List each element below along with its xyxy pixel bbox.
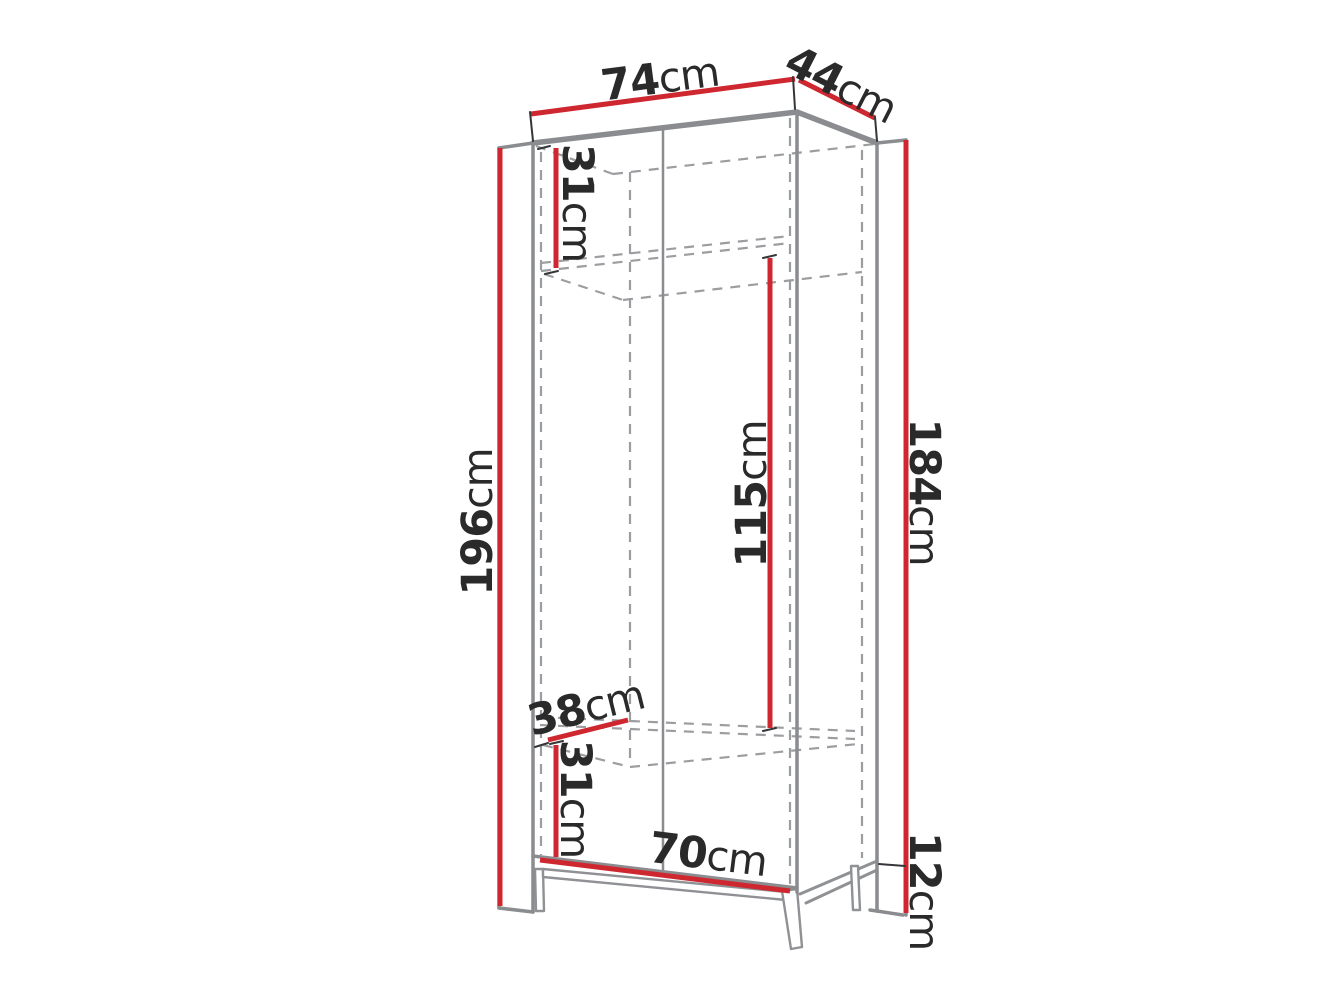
- left-panel-bottom-edge: [499, 908, 533, 912]
- top-front-and-right-edge: [533, 112, 877, 143]
- right-panel-bottom-edge: [870, 910, 903, 915]
- front-right-leg: [782, 889, 802, 949]
- right-panel-top-edge: [877, 140, 906, 143]
- diagram-canvas: 74cm 44cm 31cm 196cm 115cm 184cm 38cm 31…: [0, 0, 1342, 1006]
- dimension-label-hanging-space: 115cm: [727, 420, 777, 567]
- dimension-label-upper-section: 31cm: [552, 144, 602, 262]
- left-panel-top-edge: [499, 143, 533, 148]
- dimension-label-lower-section: 31cm: [550, 740, 600, 858]
- top-back-edge: [613, 144, 875, 174]
- tick: [763, 255, 776, 258]
- upper-shelf-back-edge: [623, 272, 862, 300]
- dimension-label-overall-height: 196cm: [453, 448, 503, 595]
- back-right-leg: [851, 866, 860, 910]
- dimension-label-top-width: 74cm: [598, 46, 722, 111]
- dimension-label-leg-height: 12cm: [899, 832, 949, 950]
- wardrobe-dimension-diagram: 74cm 44cm 31cm 196cm 115cm 184cm 38cm 31…: [0, 0, 1342, 1006]
- dimension-labels: 74cm 44cm 31cm 196cm 115cm 184cm 38cm 31…: [453, 36, 949, 950]
- dimension-label-carcass-height: 184cm: [899, 418, 949, 565]
- upper-shelf-side-edge: [544, 274, 623, 300]
- tick: [763, 728, 776, 731]
- tick: [545, 271, 558, 274]
